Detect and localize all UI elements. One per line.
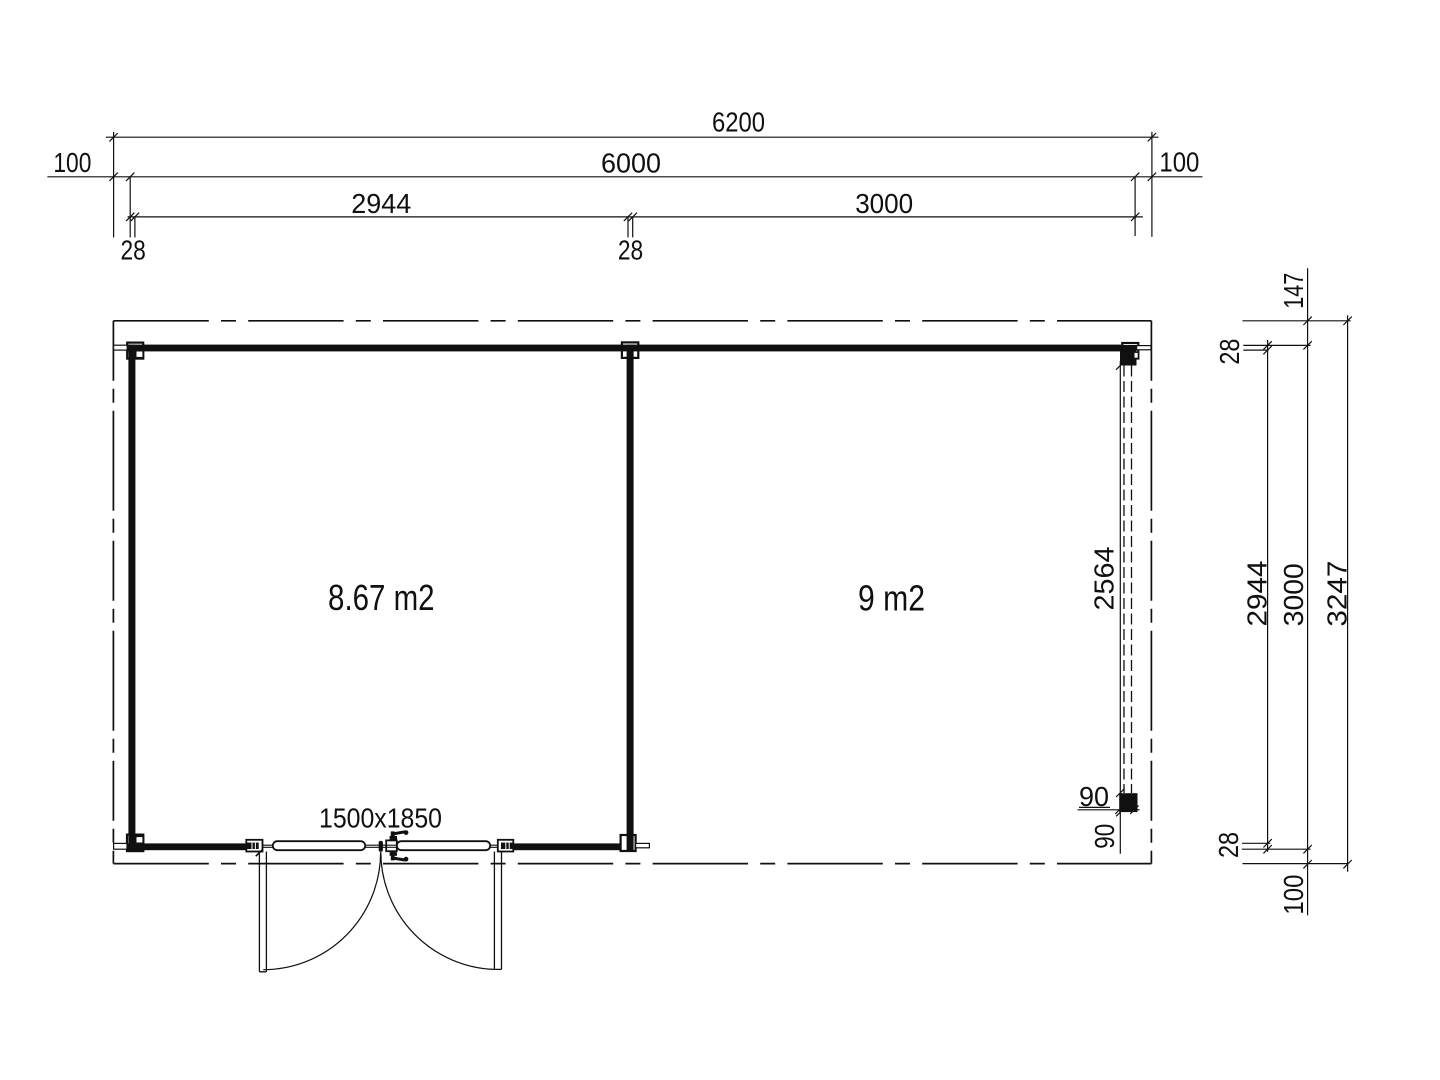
svg-text:8.67 m2: 8.67 m2 — [328, 577, 435, 618]
svg-text:90: 90 — [1079, 781, 1109, 812]
svg-text:28: 28 — [1213, 832, 1244, 858]
svg-text:1500x1850: 1500x1850 — [319, 803, 442, 834]
svg-text:100: 100 — [1159, 146, 1199, 177]
svg-text:28: 28 — [618, 234, 643, 265]
svg-text:28: 28 — [1214, 339, 1245, 365]
svg-text:147: 147 — [1278, 273, 1309, 309]
svg-text:9 m2: 9 m2 — [858, 578, 925, 619]
svg-text:2944: 2944 — [1242, 561, 1273, 627]
svg-text:100: 100 — [53, 147, 91, 178]
svg-text:100: 100 — [1278, 875, 1309, 915]
svg-text:3000: 3000 — [855, 188, 913, 219]
svg-text:28: 28 — [120, 234, 145, 265]
svg-text:6000: 6000 — [601, 147, 661, 178]
svg-text:3247: 3247 — [1321, 561, 1352, 627]
svg-text:2944: 2944 — [351, 188, 411, 219]
svg-text:2564: 2564 — [1089, 547, 1120, 611]
svg-text:90: 90 — [1089, 824, 1120, 849]
svg-text:3000: 3000 — [1278, 563, 1309, 626]
svg-text:6200: 6200 — [712, 107, 765, 138]
